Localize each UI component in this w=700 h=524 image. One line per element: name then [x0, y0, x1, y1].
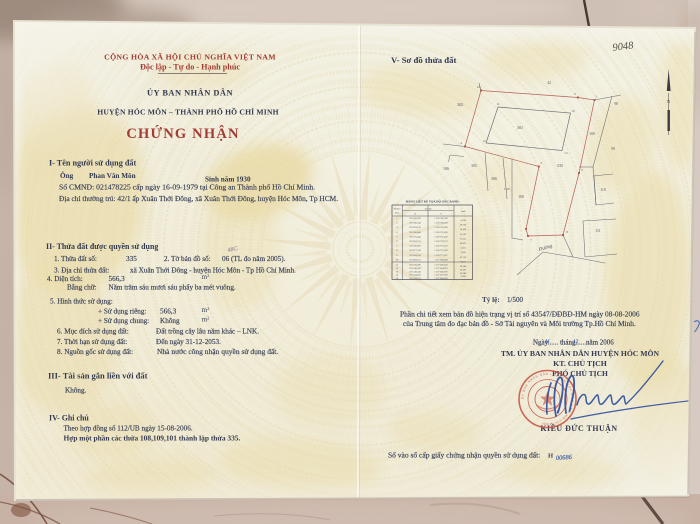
svg-text:Địa chỉ thường trú: 42/1 ấp Xu: Địa chỉ thường trú: 42/1 ấp Xuân Thới Đô…	[59, 194, 338, 203]
svg-text:591 602,161: 591 602,161	[409, 259, 421, 261]
svg-text:566,3: 566,3	[109, 275, 126, 283]
svg-text:1 327 075,620: 1 327 075,620	[434, 275, 448, 277]
svg-text:của Trung tâm đo đạc bản đồ -: của Trung tâm đo đạc bản đồ - Sở Tài ngu…	[403, 319, 636, 328]
svg-text:39,876: 39,876	[460, 243, 467, 245]
svg-text:1 326 773,547: 1 326 773,547	[434, 246, 448, 248]
svg-text:591 630,886: 591 630,886	[409, 232, 421, 234]
svg-text:302: 302	[457, 102, 463, 107]
svg-text:1 326 796,789: 1 326 796,789	[434, 218, 448, 220]
svg-text:KT. CHỦ TỊCH: KT. CHỦ TỊCH	[553, 358, 607, 368]
svg-text:1. Thửa đất số:: 1. Thửa đất số:	[54, 255, 97, 263]
svg-text:100: 100	[589, 132, 595, 136]
svg-text:591 617,326: 591 617,326	[409, 250, 421, 252]
svg-text:Hợp một phần các thửa 108,109,: Hợp một phần các thửa 108,109,101 thành …	[64, 434, 241, 443]
svg-text:Không.: Không.	[65, 387, 87, 395]
svg-text:1 326 771,057: 1 326 771,057	[434, 255, 448, 257]
svg-text:591 619,136: 591 619,136	[409, 227, 421, 229]
svg-text:Năm trăm sáu mươi sáu phẩy ba: Năm trăm sáu mươi sáu phẩy ba mét vuông.	[109, 283, 236, 292]
svg-text:591 534,455: 591 534,455	[409, 275, 421, 277]
svg-text:00686: 00686	[556, 454, 573, 462]
svg-text:CHỨNG NHẬN: CHỨNG NHẬN	[126, 125, 239, 142]
svg-text:1 326 759,286: 1 326 759,286	[434, 227, 448, 229]
svg-text:6. Mục đích sử dụng đất:: 6. Mục đích sử dụng đất:	[57, 328, 129, 336]
svg-text:06 (TL đo năm 2005).: 06 (TL đo năm 2005).	[222, 255, 286, 263]
svg-text:1.5: 1.5	[564, 152, 568, 155]
svg-text:Số vào sổ cấp giấy chứng nhận: Số vào sổ cấp giấy chứng nhận quyền sử d…	[388, 451, 540, 460]
svg-text:1 327 060,620: 1 327 060,620	[434, 265, 448, 267]
svg-text:12: 12	[482, 139, 486, 143]
svg-text:39,688: 39,688	[460, 266, 467, 268]
svg-text:53,547: 53,547	[460, 234, 467, 236]
svg-text:591 548,432: 591 548,432	[409, 268, 421, 270]
svg-text:47,756: 47,756	[460, 257, 467, 259]
svg-text:Nhà nước công nhận quyền sử dụ: Nhà nước công nhận quyền sử dụng đất.	[157, 347, 278, 356]
svg-text:11: 11	[545, 339, 550, 345]
svg-text:HUYỆN HÓC MÔN – THÀNH PHỐ HỒ C: HUYỆN HÓC MÔN – THÀNH PHỐ HỒ CHÍ MINH	[97, 107, 279, 117]
svg-text:II- Thửa đất được quyền sử dụn: II- Thửa đất được quyền sử dụng	[46, 242, 158, 251]
svg-text:1 326 751,426: 1 326 751,426	[434, 236, 448, 238]
svg-text:1 326 768,369: 1 326 768,369	[434, 223, 448, 225]
svg-text:1 327 068,048: 1 327 068,048	[434, 259, 448, 261]
svg-text:335: 335	[126, 255, 137, 263]
svg-text:591 558,261: 591 558,261	[409, 278, 421, 280]
svg-text:7. Thời hạn sử dụng đất:: 7. Thời hạn sử dụng đất:	[57, 338, 127, 346]
svg-text:Phan Văn Môn: Phan Văn Môn	[89, 172, 136, 180]
svg-text:591 667,156: 591 667,156	[409, 241, 421, 243]
svg-text:591 576,696: 591 576,696	[409, 265, 421, 267]
svg-text:xã Xuân Thới Đông - huyện Hóc: xã Xuân Thới Đông - huyện Hóc Môn - Tp H…	[130, 267, 296, 275]
svg-text:50,988: 50,988	[460, 273, 467, 275]
svg-text:591 603,160: 591 603,160	[409, 255, 421, 257]
svg-text:CỘNG HÒA XÃ HỘI CHỦ NGHĨA VIỆT: CỘNG HÒA XÃ HỘI CHỦ NGHĨA VIỆT NAM	[104, 52, 276, 62]
svg-text:Đến ngày 31-12-2053.: Đến ngày 31-12-2053.	[156, 338, 221, 346]
svg-text:591 673,445: 591 673,445	[409, 236, 421, 238]
svg-text:TM. ỦY BAN NHÂN DÂN HUYỆN HÓC: TM. ỦY BAN NHÂN DÂN HUYỆN HÓC MÔN	[501, 348, 660, 358]
svg-text:3. Địa chỉ thửa đất:: 3. Địa chỉ thửa đất:	[54, 267, 109, 275]
svg-text:Số CMND: 021478225 cấp ngày 16: Số CMND: 021478225 cấp ngày 16-09-1979 t…	[59, 183, 315, 192]
svg-text:591 582,595: 591 582,595	[409, 218, 421, 220]
svg-text:1 326 770,752: 1 326 770,752	[434, 241, 448, 243]
svg-text:Bằng chữ:: Bằng chữ:	[67, 284, 97, 292]
svg-text:IV- Ghi chú: IV- Ghi chú	[49, 413, 89, 422]
svg-text:Đất trồng cây lâu năm khác – L: Đất trồng cây lâu năm khác – LNK.	[156, 328, 259, 336]
svg-text:1107: 1107	[504, 187, 511, 191]
svg-text:591 636,081: 591 636,081	[409, 246, 421, 248]
svg-text:305: 305	[471, 164, 477, 168]
svg-text:Tọa độ: Tọa độ	[425, 208, 433, 211]
svg-text:ỦY BAN NHÂN DÂN: ỦY BAN NHÂN DÂN	[147, 88, 233, 98]
svg-text:106: 106	[443, 166, 449, 171]
svg-text:10,438: 10,438	[460, 229, 467, 231]
svg-text:1 327 066,676: 1 327 066,676	[434, 271, 448, 273]
svg-text:1 327 064,070: 1 327 064,070	[434, 268, 448, 270]
svg-text:591 538,246: 591 538,246	[409, 271, 421, 273]
svg-text:566,3: 566,3	[160, 308, 177, 316]
svg-text:11: 11	[496, 102, 499, 106]
svg-text:6,196: 6,196	[460, 220, 466, 222]
svg-text:99: 99	[611, 147, 615, 151]
svg-text:+ Sử dụng chung:: + Sử dụng chung:	[98, 317, 149, 325]
svg-text:Số hiệu: Số hiệu	[394, 208, 402, 211]
svg-text:591 590,740: 591 590,740	[409, 223, 421, 225]
svg-text:V- Sơ đồ thửa đất: V- Sơ đồ thửa đất	[391, 55, 456, 65]
svg-text:335: 335	[557, 163, 563, 168]
svg-text:điểm: điểm	[395, 212, 400, 215]
svg-text:H: H	[548, 453, 554, 460]
svg-text:5,625: 5,625	[460, 248, 466, 250]
svg-text:BẢNG LIỆT KÊ TỌA ĐỘ GÓC RANH: BẢNG LIỆT KÊ TỌA ĐỘ GÓC RANH	[406, 199, 459, 204]
svg-text:1 326 755,186: 1 326 755,186	[434, 232, 448, 234]
svg-text:98: 98	[614, 102, 618, 106]
svg-text:11,352: 11,352	[460, 238, 467, 240]
svg-text:8. Nguồn gốc sử dụng đất:: 8. Nguồn gốc sử dụng đất:	[57, 348, 133, 356]
svg-text:30,94: 30,94	[460, 261, 466, 263]
svg-text:2. Tờ bản đồ số:: 2. Tờ bản đồ số:	[164, 255, 211, 263]
svg-text:12: 12	[573, 339, 579, 345]
svg-text:32,097: 32,097	[460, 269, 467, 271]
svg-text:Độc lập - Tự do - Hạnh phúc: Độc lập - Tự do - Hạnh phúc	[140, 63, 240, 72]
svg-text:Tỷ lệ:: Tỷ lệ:	[482, 296, 500, 304]
svg-text:1/500: 1/500	[507, 296, 523, 304]
svg-text:Ông: Ông	[60, 170, 74, 180]
svg-text:29,726: 29,726	[460, 225, 467, 227]
svg-text:Không: Không	[160, 317, 180, 325]
svg-text:1 327 084,620: 1 327 084,620	[434, 278, 448, 280]
svg-text:Phần chi tiết xem bản đồ hiện: Phần chi tiết xem bản đồ hiện trạng vị t…	[400, 310, 640, 319]
svg-text:1 326 771,642: 1 326 771,642	[434, 250, 448, 252]
svg-text:III- Tài sản gắn liền với đất: III- Tài sản gắn liền với đất	[48, 371, 148, 381]
svg-text:+ Sử dụng riêng:: + Sử dụng riêng:	[98, 308, 146, 316]
svg-text:7,468: 7,468	[460, 252, 466, 254]
svg-text:7,096: 7,096	[460, 276, 466, 278]
svg-text:10: 10	[571, 109, 575, 113]
svg-text:110: 110	[600, 188, 605, 192]
svg-text:5. Hình thức sử dụng:: 5. Hình thức sử dụng:	[50, 298, 113, 306]
svg-text:108: 108	[518, 195, 524, 199]
svg-text:301: 301	[517, 125, 523, 130]
svg-text:111: 111	[595, 229, 601, 233]
svg-text:Theo hợp đồng số 112/UB ngày 1: Theo hợp đồng số 112/UB ngày 15-08-2006.	[64, 424, 193, 432]
svg-text:42: 42	[547, 81, 551, 85]
svg-text:306: 306	[491, 177, 497, 181]
svg-text:I- Tên người sử dụng đất: I- Tên người sử dụng đất	[49, 159, 137, 168]
svg-text:4. Diện tích:: 4. Diện tích:	[47, 275, 83, 283]
